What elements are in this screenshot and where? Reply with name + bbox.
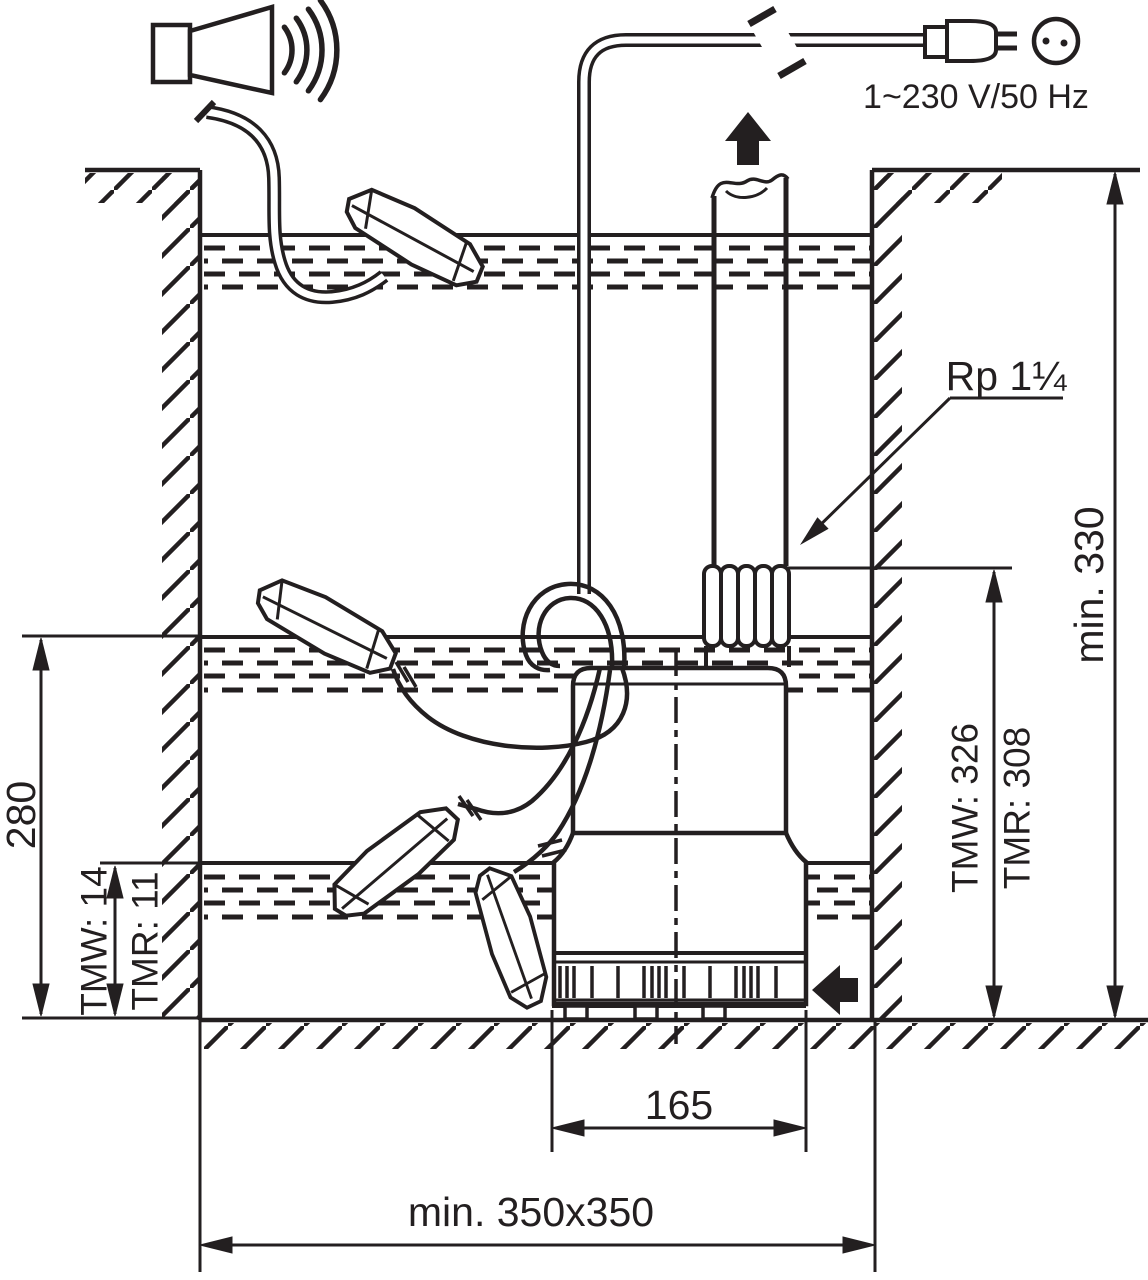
dim-label-165: 165 (645, 1082, 713, 1128)
dim-label-tmw-14: TMW: 14 (74, 866, 115, 1015)
water-level-alarm (202, 235, 870, 287)
power-plug-icon (925, 21, 1017, 61)
float-switch-mid (249, 566, 405, 686)
wall-hatch-right (874, 176, 902, 1018)
sound-waves-icon (284, 0, 336, 99)
float-switch-high (338, 175, 492, 299)
dim-label-min-330: min. 330 (1066, 506, 1112, 663)
diagram-canvas: 1~230 V/50 Hz (0, 0, 1148, 1280)
flow-up-arrow-icon (725, 112, 771, 165)
alarm-horn-icon (153, 7, 272, 93)
thread-size-callout (800, 398, 1063, 545)
wall-hatch-left (162, 176, 198, 1018)
power-socket-icon (1034, 19, 1078, 63)
pump-foot (635, 1006, 657, 1019)
pump-handle (523, 584, 625, 670)
pump-foot (565, 1006, 587, 1019)
pump-foot (703, 1006, 725, 1019)
inflow-arrow-icon (812, 965, 858, 1015)
power-rating-label: 1~230 V/50 Hz (863, 78, 1089, 116)
dim-label-tmw-326: TMW: 326 (945, 723, 986, 893)
dim-label-tmr-308: TMR: 308 (997, 727, 1038, 889)
dim-label-280: 280 (0, 781, 44, 849)
installation-diagram: 1~230 V/50 Hz (0, 0, 1148, 1280)
float-switch-hanging (470, 861, 552, 1013)
dim-label-tmr-11: TMR: 11 (125, 871, 166, 1010)
dim-label-min-350x350: min. 350x350 (408, 1189, 654, 1235)
thread-size-label: Rp 1¼ (946, 353, 1068, 399)
